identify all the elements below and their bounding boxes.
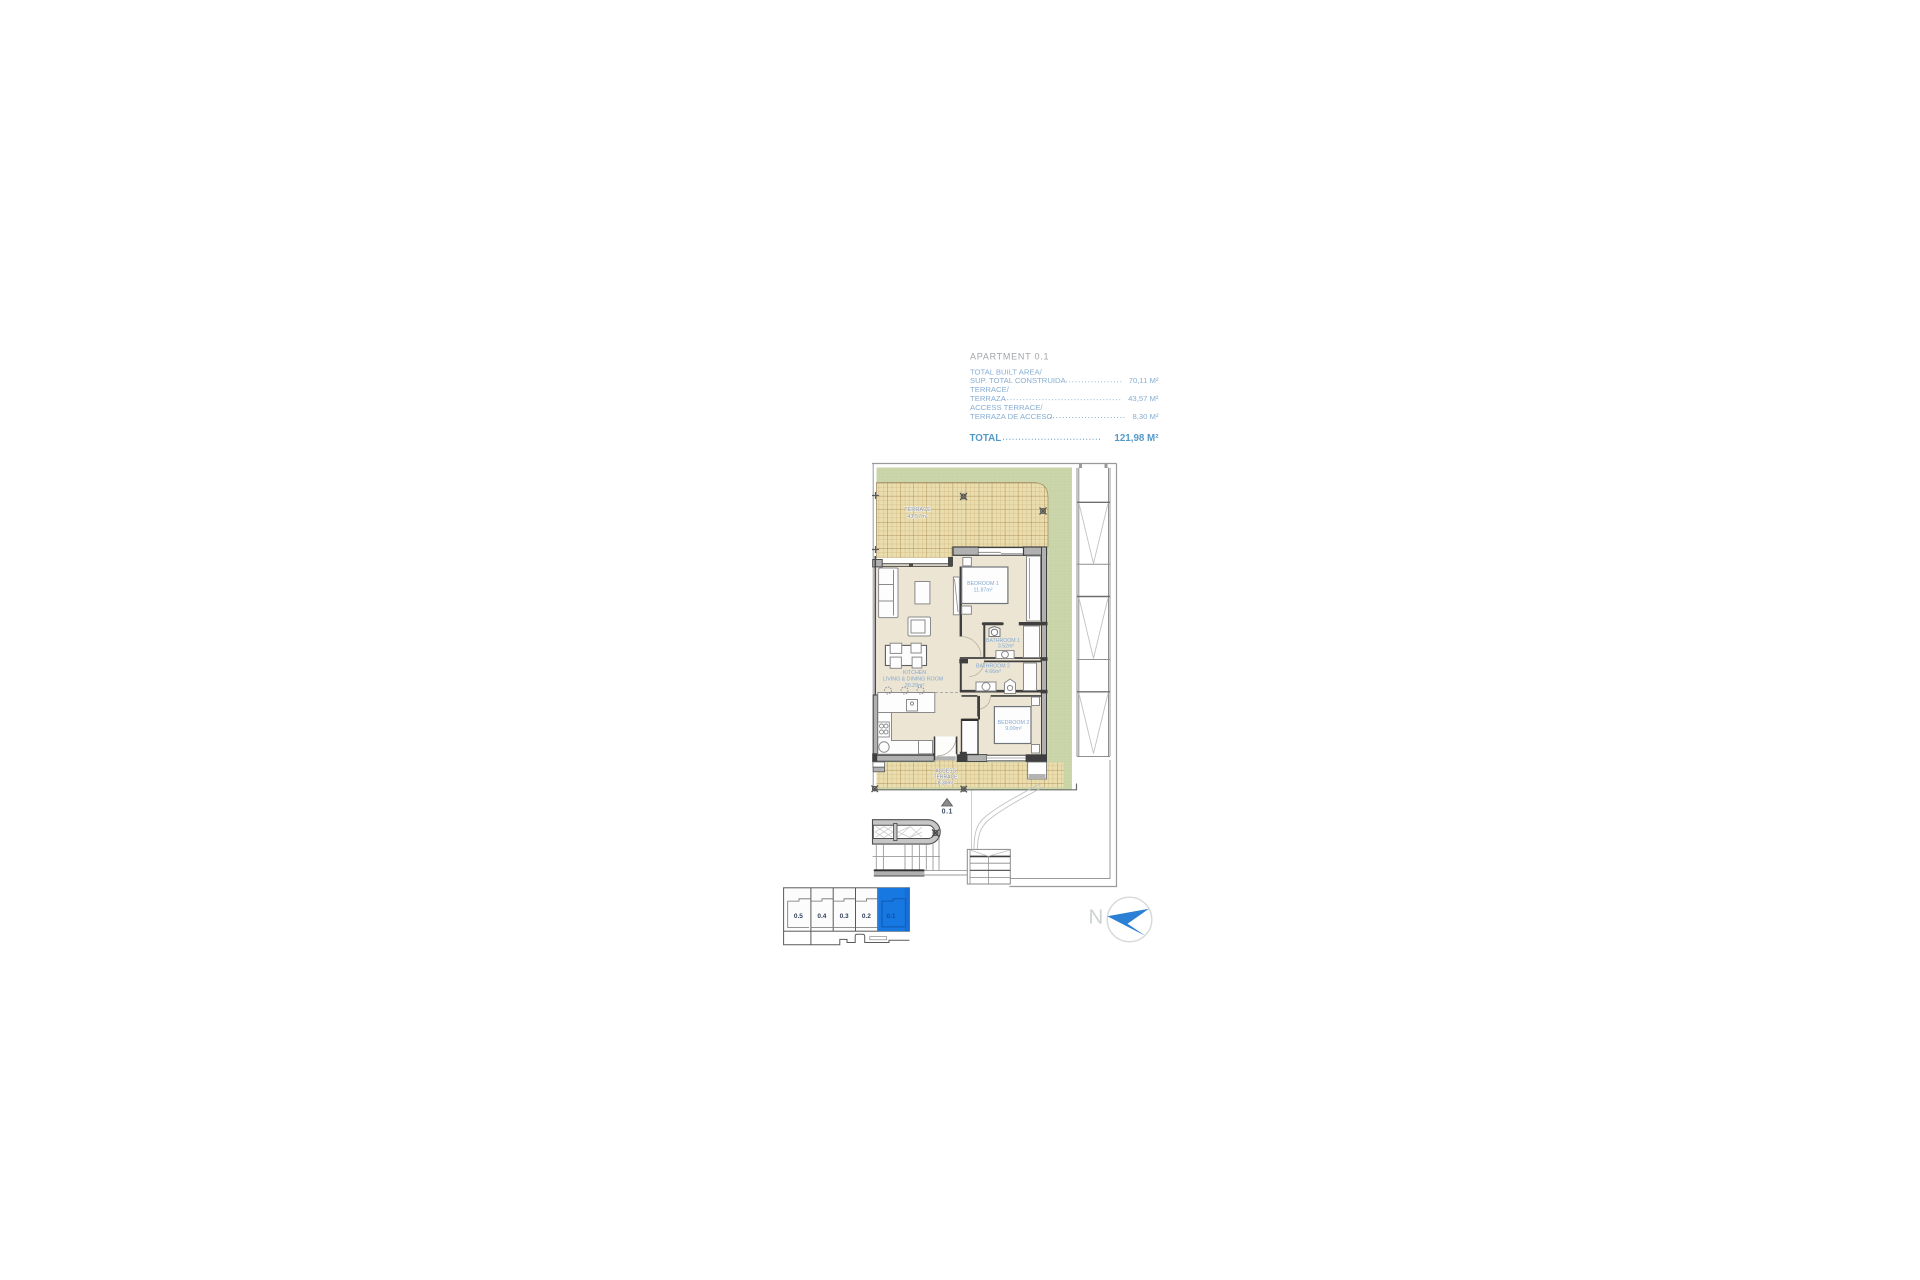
svg-text:TERRACE/: TERRACE/ bbox=[970, 385, 1010, 394]
svg-text:TOTAL BUILT AREA/: TOTAL BUILT AREA/ bbox=[970, 367, 1043, 376]
svg-text:0.1: 0.1 bbox=[942, 809, 953, 816]
svg-text:0.3: 0.3 bbox=[840, 913, 849, 920]
svg-text:0.1: 0.1 bbox=[886, 913, 895, 920]
svg-text:43,57 M²: 43,57 M² bbox=[1128, 394, 1159, 403]
svg-text:121,98 M²: 121,98 M² bbox=[1114, 433, 1159, 444]
svg-text:0.2: 0.2 bbox=[862, 913, 871, 920]
svg-text:30.29m²: 30.29m² bbox=[905, 683, 925, 689]
svg-text:3.52m²: 3.52m² bbox=[998, 644, 1014, 650]
svg-text:ACCESS TERRACE/: ACCESS TERRACE/ bbox=[970, 403, 1043, 412]
svg-text:9.00m²: 9.00m² bbox=[1005, 726, 1022, 732]
svg-text:11.87m²: 11.87m² bbox=[973, 588, 992, 594]
svg-text:TOTAL: TOTAL bbox=[970, 433, 1002, 444]
svg-text:8.30m²: 8.30m² bbox=[938, 781, 954, 787]
svg-text:0.4: 0.4 bbox=[817, 913, 826, 920]
svg-text:TERRACE: TERRACE bbox=[904, 507, 931, 513]
svg-text:8,30 M²: 8,30 M² bbox=[1132, 412, 1159, 421]
svg-text:KITCHEN: KITCHEN bbox=[903, 670, 926, 676]
svg-text:BEDROOM 1: BEDROOM 1 bbox=[967, 581, 999, 587]
svg-text:SUP. TOTAL CONSTRUIDA: SUP. TOTAL CONSTRUIDA bbox=[970, 376, 1067, 385]
svg-text:LIVING & DINING ROOM: LIVING & DINING ROOM bbox=[883, 677, 943, 683]
svg-text:43.57m²: 43.57m² bbox=[907, 514, 928, 520]
svg-text:TERRAZA: TERRAZA bbox=[970, 394, 1007, 403]
svg-text:N: N bbox=[1089, 906, 1104, 929]
svg-text:0.5: 0.5 bbox=[794, 913, 803, 920]
svg-text:TERRAZA DE ACCESO: TERRAZA DE ACCESO bbox=[970, 412, 1052, 421]
svg-text:4.66m²: 4.66m² bbox=[985, 669, 1001, 675]
svg-text:70,11 M²: 70,11 M² bbox=[1129, 376, 1159, 385]
svg-text:APARTMENT 0.1: APARTMENT 0.1 bbox=[970, 352, 1049, 362]
